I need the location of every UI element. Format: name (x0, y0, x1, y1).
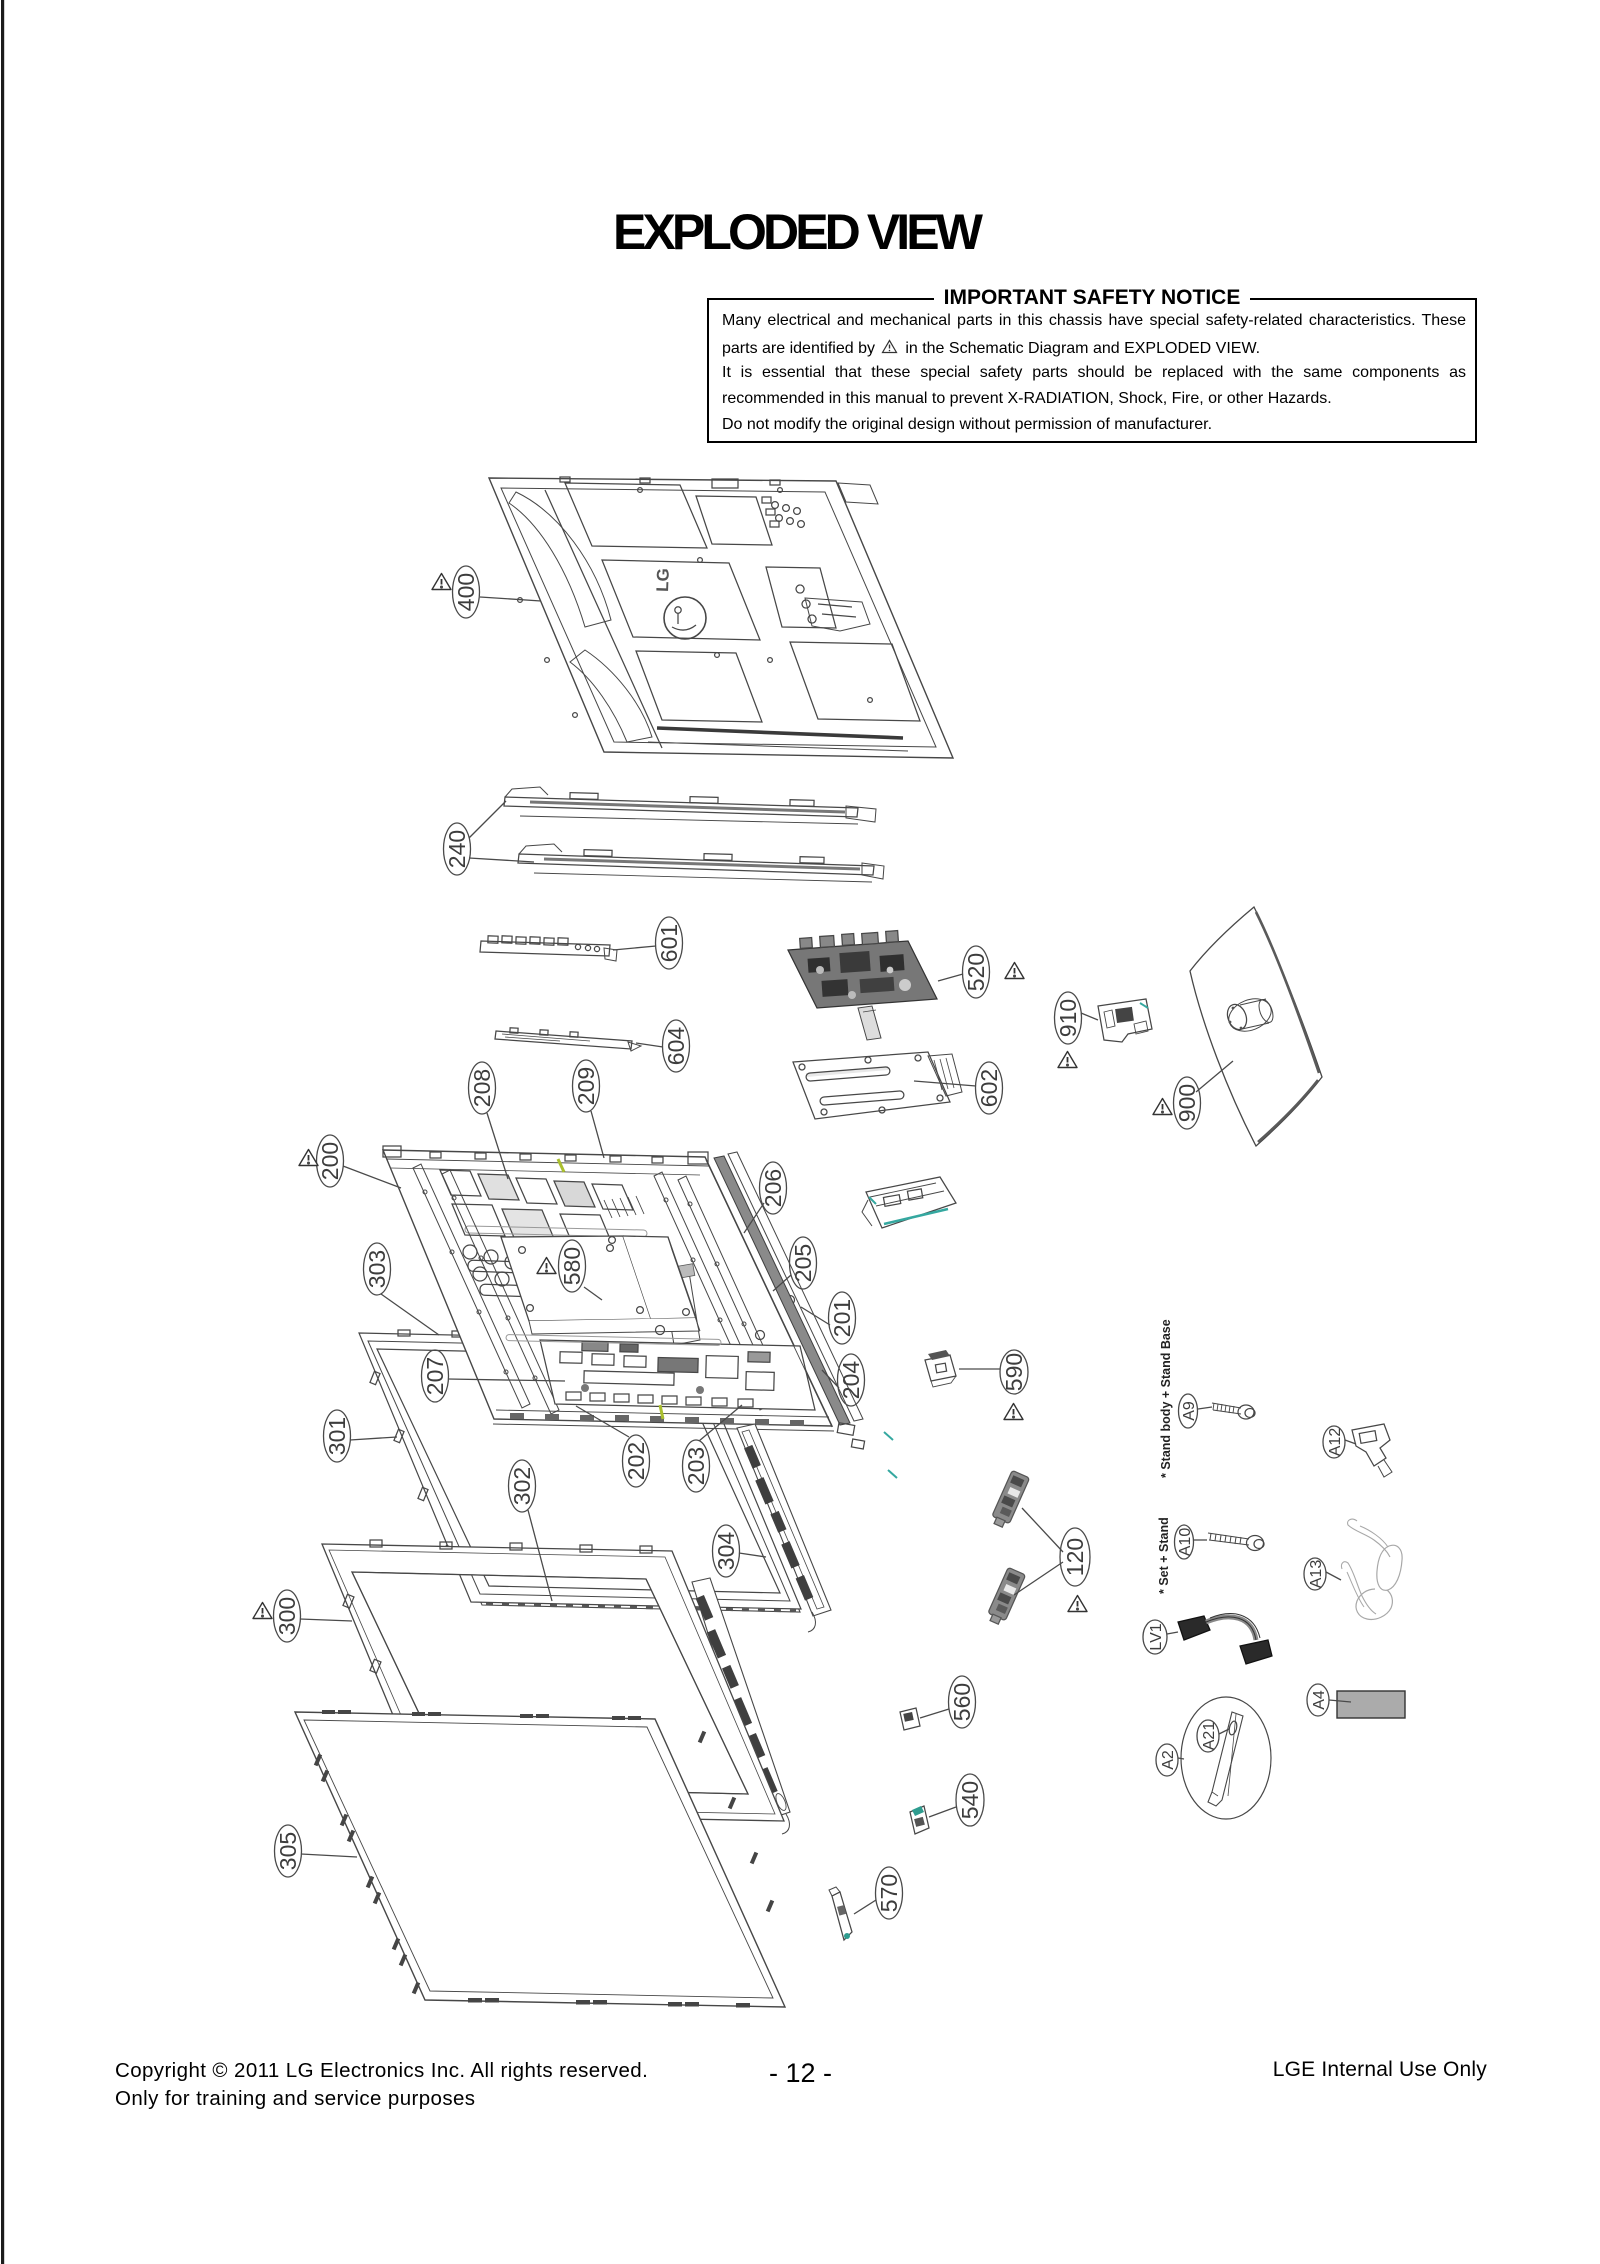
svg-text:* Set + Stand: * Set + Stand (1157, 1517, 1171, 1594)
svg-text:560: 560 (949, 1683, 975, 1721)
svg-text:520: 520 (963, 953, 989, 991)
svg-text:305: 305 (275, 1832, 301, 1870)
svg-text:300: 300 (274, 1597, 300, 1635)
svg-text:A10: A10 (1177, 1528, 1194, 1557)
svg-text:200: 200 (317, 1142, 343, 1180)
svg-text:LG: LG (653, 568, 673, 592)
svg-text:590: 590 (1001, 1353, 1027, 1391)
svg-text:A12: A12 (1327, 1428, 1344, 1457)
svg-text:A13: A13 (1308, 1560, 1325, 1589)
svg-text:202: 202 (623, 1442, 649, 1480)
svg-text:301: 301 (324, 1417, 350, 1455)
svg-text:A21: A21 (1201, 1722, 1218, 1751)
svg-text:240: 240 (444, 830, 470, 868)
svg-text:570: 570 (876, 1874, 902, 1912)
svg-text:910: 910 (1055, 999, 1081, 1037)
svg-text:LV1: LV1 (1148, 1623, 1165, 1650)
svg-text:204: 204 (838, 1361, 864, 1400)
svg-text:303: 303 (364, 1250, 390, 1288)
svg-text:304: 304 (713, 1532, 739, 1571)
svg-text:900: 900 (1174, 1084, 1200, 1122)
svg-text:A2: A2 (1160, 1750, 1177, 1770)
svg-text:* Stand body + Stand Base: * Stand body + Stand Base (1159, 1319, 1173, 1478)
svg-text:209: 209 (573, 1067, 599, 1105)
svg-text:208: 208 (469, 1069, 495, 1107)
svg-text:580: 580 (559, 1247, 585, 1285)
svg-text:400: 400 (453, 573, 479, 611)
svg-text:207: 207 (422, 1357, 448, 1395)
svg-text:540: 540 (957, 1781, 983, 1819)
svg-text:A9: A9 (1181, 1401, 1198, 1421)
svg-text:206: 206 (760, 1169, 786, 1207)
svg-text:201: 201 (829, 1299, 855, 1337)
svg-text:203: 203 (683, 1447, 709, 1485)
svg-text:601: 601 (656, 924, 682, 962)
svg-text:302: 302 (509, 1467, 535, 1505)
svg-text:205: 205 (790, 1244, 816, 1282)
svg-text:A4: A4 (1311, 1690, 1328, 1710)
svg-text:120: 120 (1062, 1538, 1088, 1576)
svg-text:604: 604 (663, 1027, 689, 1066)
svg-text:602: 602 (976, 1069, 1002, 1107)
